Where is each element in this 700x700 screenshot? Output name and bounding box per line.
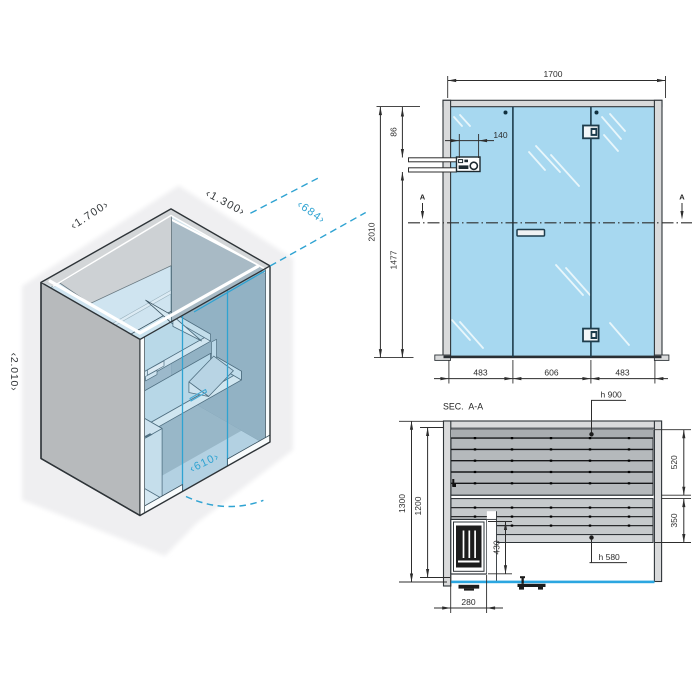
svg-text:‹684›: ‹684› (295, 199, 328, 227)
svg-text:‹2.010›: ‹2.010› (8, 353, 20, 392)
svg-text:350: 350 (669, 513, 679, 527)
svg-text:280: 280 (461, 597, 475, 607)
svg-text:1200: 1200 (413, 496, 423, 515)
svg-text:SEC. A-A: SEC. A-A (443, 402, 483, 412)
svg-text:1477: 1477 (389, 250, 399, 269)
svg-text:606: 606 (544, 367, 558, 377)
svg-text:h 580: h 580 (599, 552, 621, 562)
svg-text:h 900: h 900 (601, 390, 623, 400)
svg-text:140: 140 (493, 130, 507, 140)
svg-text:1300: 1300 (397, 494, 407, 513)
svg-text:2010: 2010 (367, 222, 377, 241)
svg-text:A: A (679, 193, 685, 202)
svg-text:483: 483 (615, 367, 629, 377)
svg-text:430: 430 (492, 540, 502, 554)
svg-text:‹1.700›: ‹1.700› (69, 198, 112, 232)
svg-text:483: 483 (473, 367, 487, 377)
svg-text:1700: 1700 (544, 69, 563, 79)
svg-text:520: 520 (669, 455, 679, 469)
svg-text:A: A (420, 193, 426, 202)
svg-text:86: 86 (389, 127, 399, 137)
